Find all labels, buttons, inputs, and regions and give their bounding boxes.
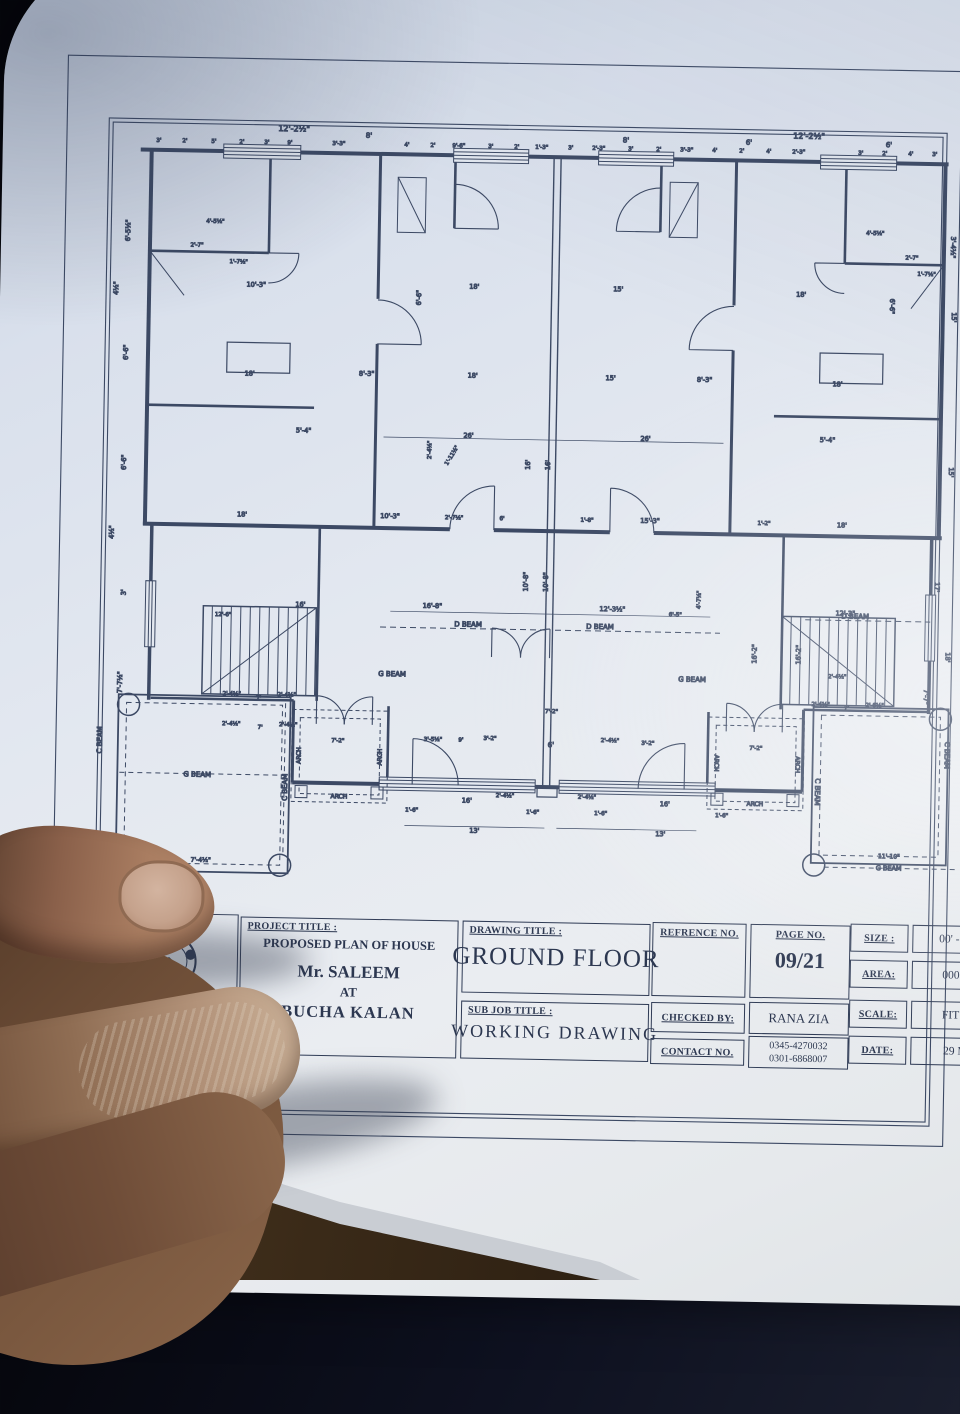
photo-of-floor-plan: { "colors": { "paper": "#e6eaf0", "ink":… xyxy=(0,0,960,1280)
hand-holding-sheet xyxy=(0,0,960,1280)
thumbnail xyxy=(118,860,205,933)
